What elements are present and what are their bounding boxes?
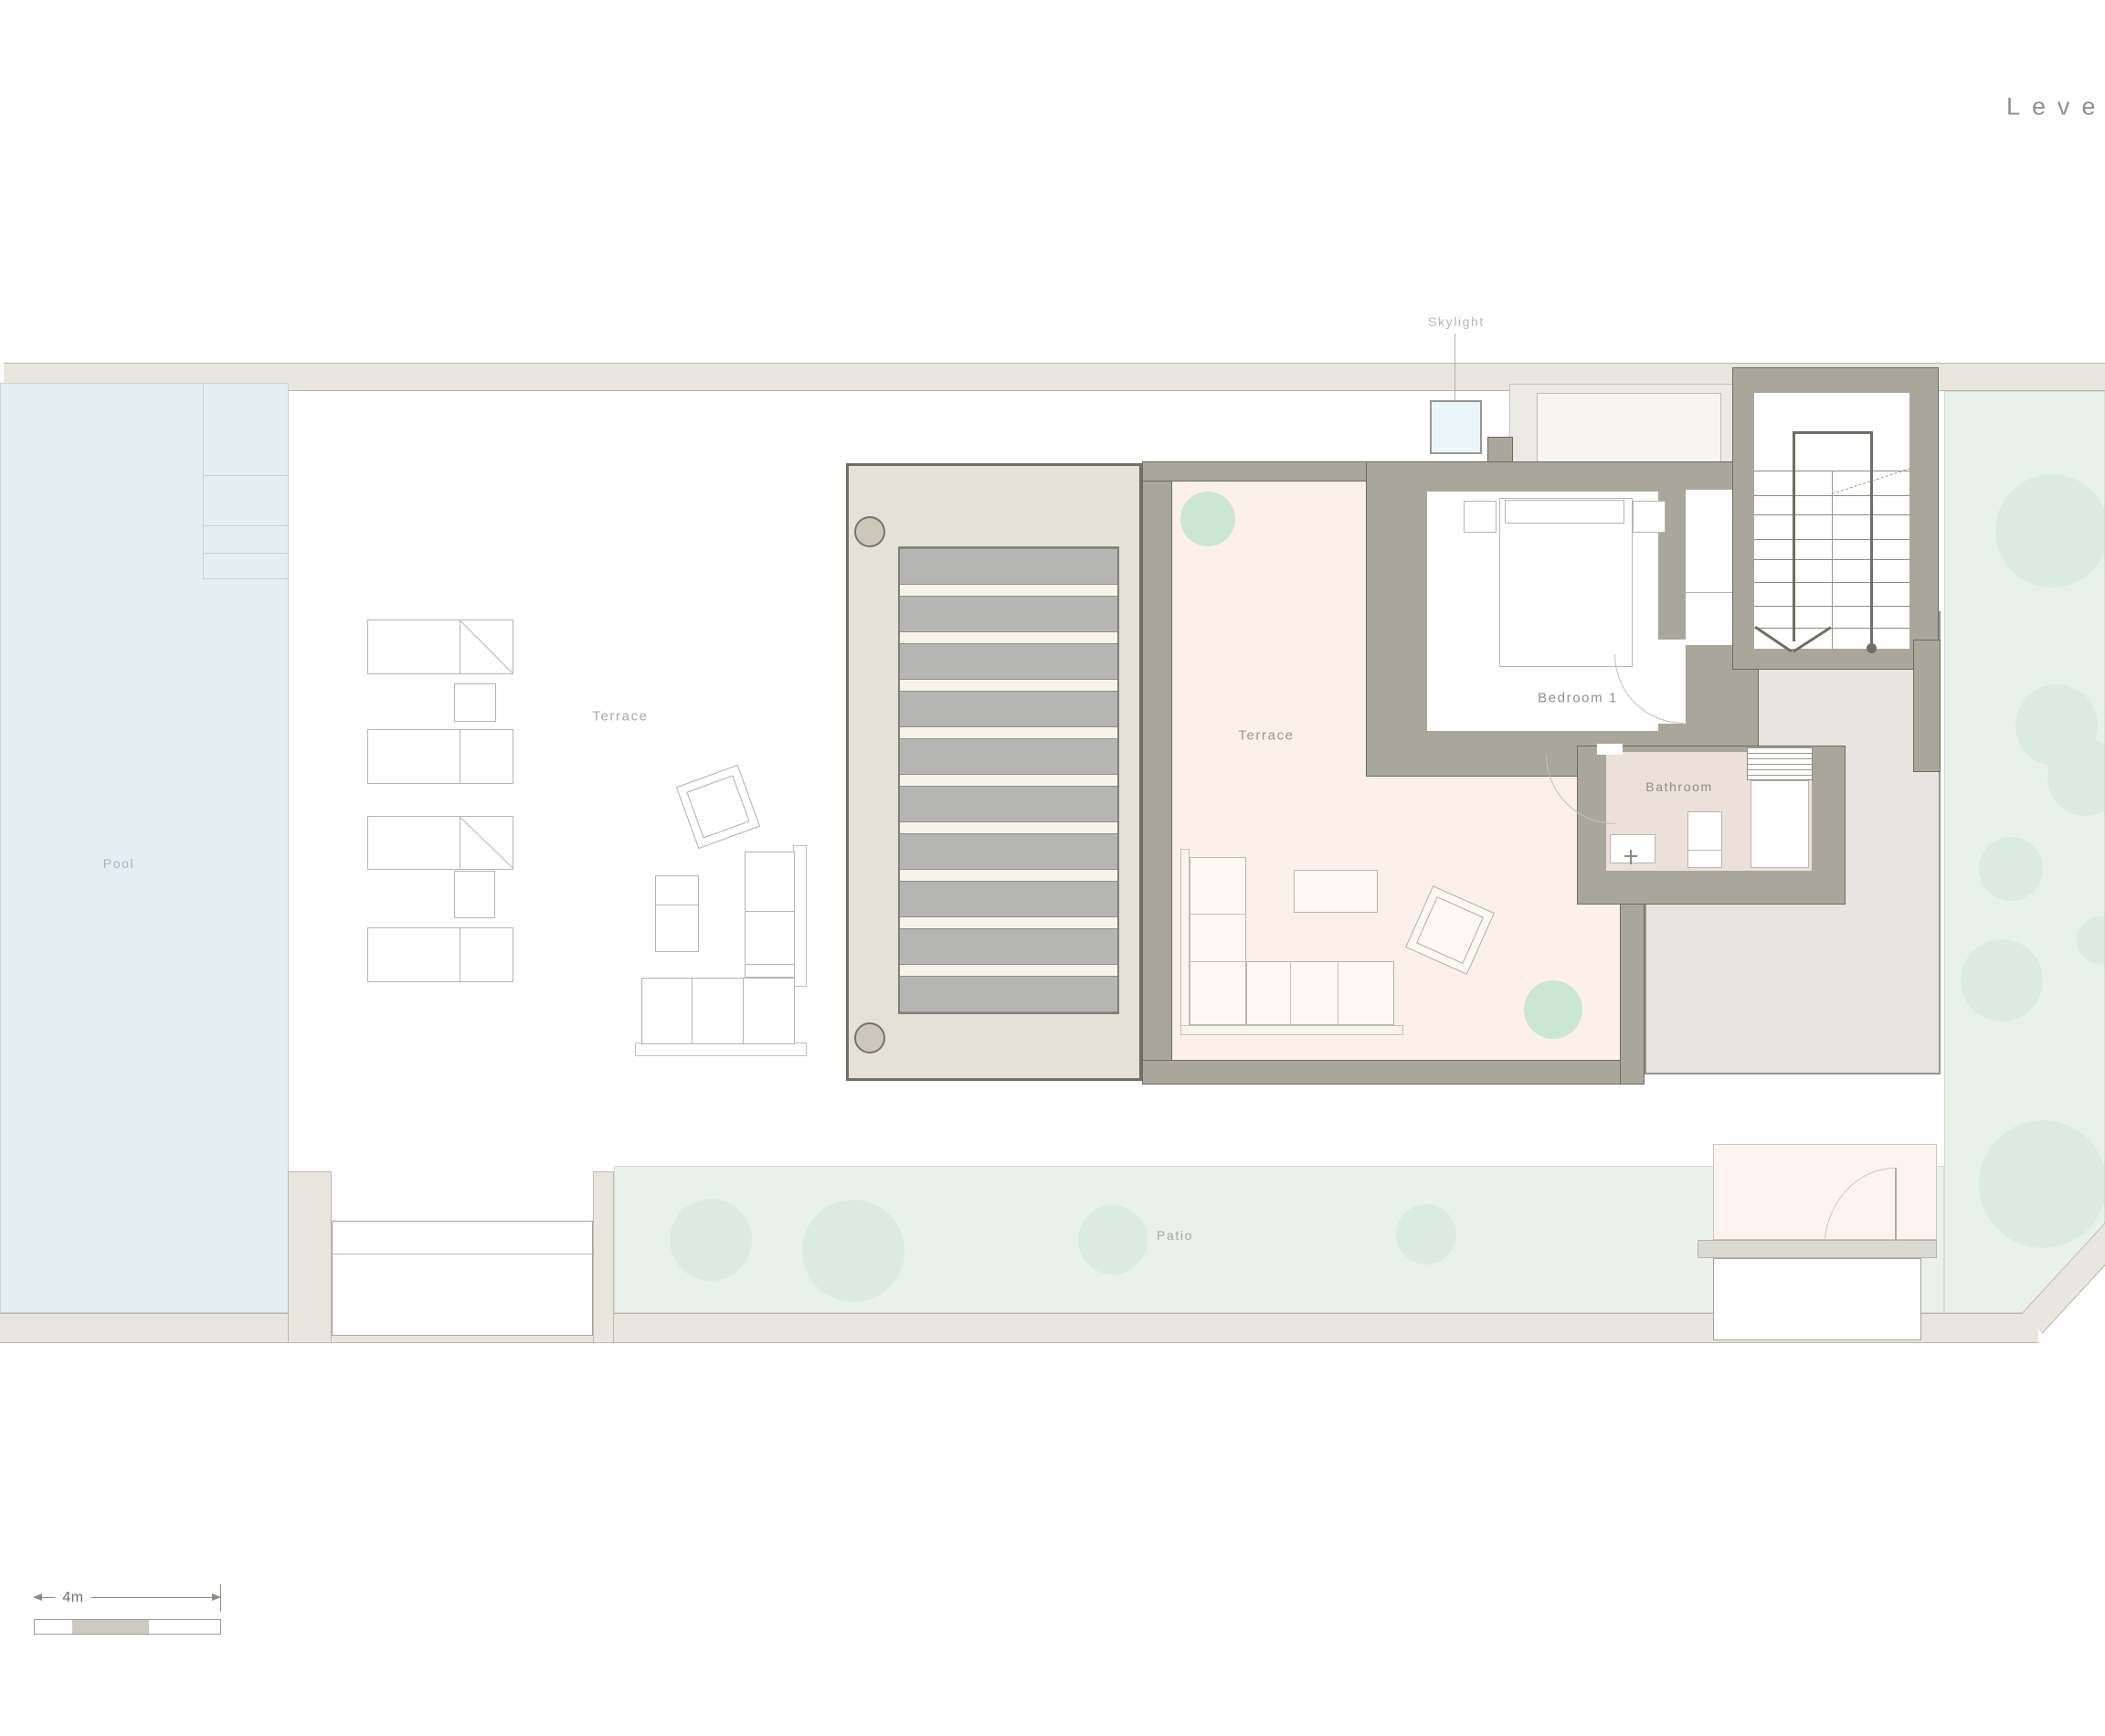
ottoman-line	[655, 905, 699, 905]
nightstand	[1633, 501, 1666, 533]
entry-room	[1713, 1144, 1937, 1240]
sofa-cushion-line	[743, 978, 744, 1044]
armchair-seat	[1416, 896, 1484, 964]
skylight	[1430, 400, 1482, 454]
sofa-cushion-line	[1190, 914, 1246, 915]
sofa-section	[641, 978, 795, 1044]
faucet-icon	[1624, 855, 1637, 857]
terrace-main-label: Terrace	[1238, 728, 1294, 744]
garden-chair	[676, 765, 760, 849]
lounger-fold-line	[460, 927, 460, 982]
scale-bar	[34, 1619, 221, 1635]
terrace-wall-bottom	[1142, 1060, 1645, 1085]
sun-lounger	[367, 927, 513, 982]
sofa-backrest	[1180, 849, 1190, 1032]
scale-arrow-icon	[33, 1593, 42, 1601]
coffee-table	[1294, 870, 1378, 913]
terrace-left-label: Terrace	[592, 709, 648, 725]
scale-tick	[220, 1584, 221, 1612]
lounger-fold-line	[460, 729, 460, 784]
sofa-cushion-line	[1290, 961, 1291, 1025]
sofa-section	[1246, 961, 1394, 1025]
pool-label: Pool	[103, 856, 134, 871]
tree-icon	[1078, 1205, 1148, 1275]
ottoman	[655, 875, 699, 952]
pool-step	[203, 553, 288, 554]
side-table	[454, 871, 495, 918]
sofa-section	[745, 852, 795, 978]
side-table	[454, 683, 496, 722]
stair-rail	[1870, 431, 1873, 647]
lounger-fold-line	[460, 816, 460, 870]
shower	[1751, 780, 1809, 868]
column-dot	[854, 1022, 885, 1053]
roof-hallway-opening	[1537, 393, 1721, 466]
toilet-tank-line	[1687, 850, 1722, 851]
sofa-backrest	[635, 1043, 807, 1056]
skylight-label: Skylight	[1428, 314, 1485, 329]
tree-icon	[670, 1199, 752, 1281]
sofa-cushion-line	[692, 978, 693, 1044]
shower-slats	[1747, 747, 1813, 780]
sofa-cushion-line	[1190, 961, 1246, 962]
pool-step	[203, 475, 288, 476]
tree-icon	[1961, 939, 2043, 1021]
entry-lower-room	[1713, 1258, 1921, 1340]
sofa-cushion-line	[745, 911, 795, 912]
sofa-section	[1190, 857, 1246, 1025]
bathroom-label: Bathroom	[1645, 779, 1713, 794]
bed-headboard	[1505, 500, 1624, 524]
plant-icon	[1524, 980, 1582, 1039]
lower-room-line	[332, 1254, 593, 1254]
sofa-backrest	[793, 845, 807, 987]
faucet-icon	[1630, 850, 1632, 864]
entry-threshold	[1698, 1240, 1937, 1258]
skylight-leader-line	[1454, 333, 1455, 400]
sofa-cushion-line	[745, 964, 795, 965]
terrace-wall-left	[1142, 461, 1172, 1085]
pool-step	[203, 578, 288, 579]
floor-plan: 4m Level Pool Terrace Terrace Bedroom 1 …	[0, 0, 2105, 1736]
tree-icon	[1396, 1204, 1456, 1265]
garden-wall-band	[593, 1171, 614, 1343]
lower-room	[332, 1221, 593, 1336]
stair-newel-dot	[1867, 643, 1877, 653]
entry-door-leaf	[1895, 1168, 1897, 1250]
tree-icon	[2077, 916, 2105, 964]
stair-stringer-line	[1832, 471, 1833, 649]
bathroom-door-opening	[1597, 744, 1623, 755]
pool-step	[203, 525, 288, 526]
tree-icon	[1979, 1120, 2105, 1248]
column-dot	[854, 516, 885, 547]
stair-rail	[1793, 431, 1795, 641]
sink	[1610, 834, 1655, 863]
pool	[0, 383, 289, 1313]
page-title: Level	[2006, 93, 2105, 122]
tree-icon	[1995, 474, 2105, 587]
tree-icon	[802, 1200, 904, 1302]
terrace-wall-right	[1620, 886, 1645, 1085]
pergola-slats	[898, 546, 1119, 1014]
sun-lounger	[367, 816, 513, 870]
garden-right	[1944, 391, 2105, 1313]
sun-lounger	[367, 729, 513, 784]
toilet	[1687, 811, 1722, 868]
sofa-cushion-line	[1338, 961, 1338, 1025]
stair-rail	[1793, 431, 1872, 434]
tree-icon	[1979, 837, 2043, 901]
lounger-fold-line	[460, 619, 460, 674]
stairwell-wall-extension	[1913, 640, 1941, 772]
patio-label: Patio	[1157, 1228, 1193, 1243]
garden-chair-seat	[686, 775, 749, 838]
bedroom-label: Bedroom 1	[1538, 691, 1618, 706]
garden-wall-band	[288, 1171, 332, 1343]
pool-steps-divider	[203, 383, 204, 580]
nightstand	[1464, 501, 1497, 533]
plant-icon	[1180, 492, 1235, 546]
scale-bar-segment	[72, 1620, 149, 1634]
scale-length-label: 4m	[55, 1590, 90, 1606]
sofa-backrest	[1180, 1025, 1403, 1035]
sun-lounger	[367, 619, 513, 674]
